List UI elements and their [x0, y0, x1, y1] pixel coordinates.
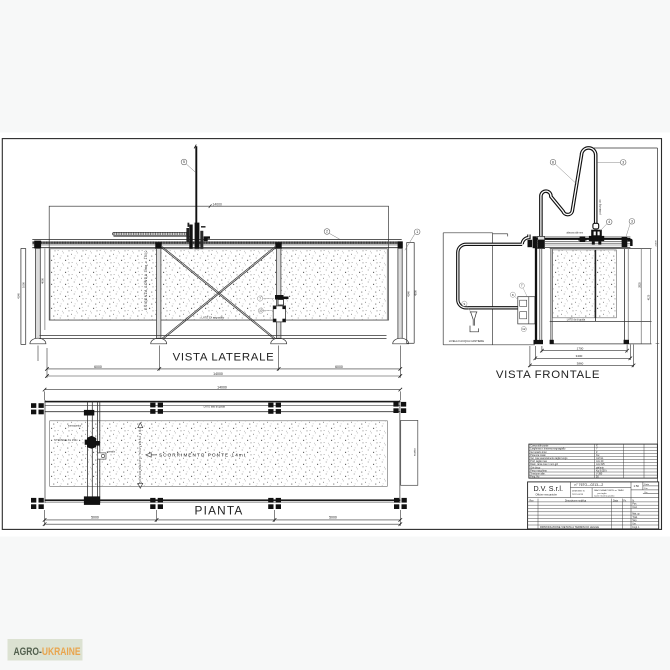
- svg-text:1: 1: [416, 230, 418, 234]
- svg-text:Descrizione modifica: Descrizione modifica: [565, 499, 587, 502]
- svg-text:3835: 3835: [639, 282, 642, 288]
- svg-text:4000: 4000: [41, 278, 45, 284]
- svg-text:5: 5: [183, 160, 185, 164]
- svg-text:3400: 3400: [576, 354, 583, 358]
- svg-text:1:50: 1:50: [634, 484, 640, 488]
- svg-text:Officine meccaniche: Officine meccaniche: [536, 493, 558, 496]
- svg-text:14000: 14000: [213, 372, 223, 376]
- svg-text:4140: 4140: [406, 291, 410, 297]
- svg-text:per taglio: per taglio: [598, 492, 608, 495]
- svg-text:Freq. Hz: Freq. Hz: [530, 476, 540, 479]
- svg-text:UTENSILE cm 150x: UTENSILE cm 150x: [54, 438, 78, 442]
- svg-text:14000: 14000: [213, 202, 223, 206]
- svg-text:3860: 3860: [577, 361, 584, 365]
- svg-text:SCORRIMENTO TRAVERSA 4mt: SCORRIMENTO TRAVERSA 4mt: [138, 428, 142, 483]
- svg-text:Pos.: Pos.: [632, 504, 637, 506]
- svg-text:2: 2: [326, 230, 328, 234]
- svg-text:utensile ..: utensile ..: [107, 450, 118, 453]
- svg-text:76TO-0213: 76TO-0213: [572, 494, 584, 496]
- svg-text:14000: 14000: [217, 385, 227, 389]
- svg-text:n° 76TO—0213—2: n° 76TO—0213—2: [575, 483, 604, 487]
- svg-text:8: 8: [552, 160, 554, 164]
- svg-text:MACCHINA PONTE su TRAVI: MACCHINA PONTE su TRAVI: [594, 489, 624, 492]
- svg-text:Mat. gr.: Mat. gr.: [632, 513, 640, 516]
- svg-text:Dis.: Dis.: [644, 488, 648, 490]
- svg-text:6000: 6000: [335, 365, 343, 369]
- svg-text:Tratt.: Tratt.: [632, 516, 638, 519]
- svg-text:lastre marmo granito: lastre marmo granito: [594, 495, 615, 498]
- svg-text:3: 3: [622, 161, 624, 165]
- svg-text:5000: 5000: [91, 516, 99, 520]
- svg-text:Fir.: Fir.: [623, 499, 627, 502]
- svg-text:VISTA LATERALE: VISTA LATERALE: [173, 351, 275, 363]
- svg-text:scarico: scarico: [414, 447, 417, 456]
- svg-text:7: 7: [521, 284, 523, 288]
- svg-text:5000: 5000: [329, 516, 337, 520]
- svg-text:8: 8: [512, 293, 514, 297]
- svg-text:RIPRODUZIONE VIETATA A TERMINI: RIPRODUZIONE VIETATA A TERMINI DI LEGGE: [540, 526, 600, 529]
- svg-text:9: 9: [464, 302, 466, 306]
- svg-text:4125: 4125: [648, 294, 651, 300]
- svg-text:6000: 6000: [94, 365, 102, 369]
- svg-text:SCORRIMENTO PONTE 14mt: SCORRIMENTO PONTE 14mt: [159, 453, 246, 458]
- svg-text:21000: 21000: [655, 240, 657, 247]
- svg-text:D.V. S.r.l.: D.V. S.r.l.: [534, 484, 564, 493]
- svg-text:Data: Data: [644, 483, 649, 486]
- svg-text:AGRO-UKRAINE: AGRO-UKRAINE: [14, 646, 81, 658]
- svg-text:Sup.: Sup.: [632, 520, 637, 522]
- svg-text:ESIGENZA SONDA 3mq x 1500: ESIGENZA SONDA 3mq x 1500: [144, 250, 148, 310]
- svg-text:Data: Data: [613, 499, 619, 502]
- svg-text:Vis.: Vis.: [644, 492, 648, 494]
- svg-text:1000: 1000: [21, 282, 25, 288]
- svg-text:VISTA FRONTALE: VISTA FRONTALE: [496, 369, 600, 381]
- svg-text:1700: 1700: [577, 347, 584, 351]
- svg-text:N.: N.: [632, 500, 635, 502]
- svg-text:4140: 4140: [17, 293, 21, 299]
- svg-text:Um.: Um.: [632, 523, 637, 525]
- svg-text:3: 3: [631, 220, 633, 224]
- svg-text:portata Kg 100: portata Kg 100: [599, 199, 602, 215]
- svg-text:7: 7: [259, 297, 261, 301]
- svg-text:altezza utile mm: altezza utile mm: [567, 231, 584, 234]
- svg-text:10: 10: [259, 309, 263, 313]
- svg-text:LATO dx di guida: LATO dx di guida: [567, 319, 586, 322]
- svg-text:4: 4: [608, 220, 610, 224]
- svg-text:PIANTA: PIANTA: [195, 503, 244, 517]
- svg-text:LIVELLO ACQUA CANTIERE: LIVELLO ACQUA CANTIERE: [449, 339, 484, 343]
- svg-text:Fogl. 1: Fogl. 1: [632, 527, 640, 529]
- svg-text:Cod.: Cod.: [632, 507, 637, 509]
- svg-text:DISEGNO N.: DISEGNO N.: [572, 491, 585, 493]
- svg-text:LATO lato di guida: LATO lato di guida: [204, 405, 226, 409]
- svg-text:12: 12: [522, 327, 526, 331]
- svg-text:zona carico: zona carico: [68, 423, 82, 427]
- svg-text:4500: 4500: [413, 290, 417, 296]
- svg-text:LATO SX segnalato: LATO SX segnalato: [202, 316, 225, 320]
